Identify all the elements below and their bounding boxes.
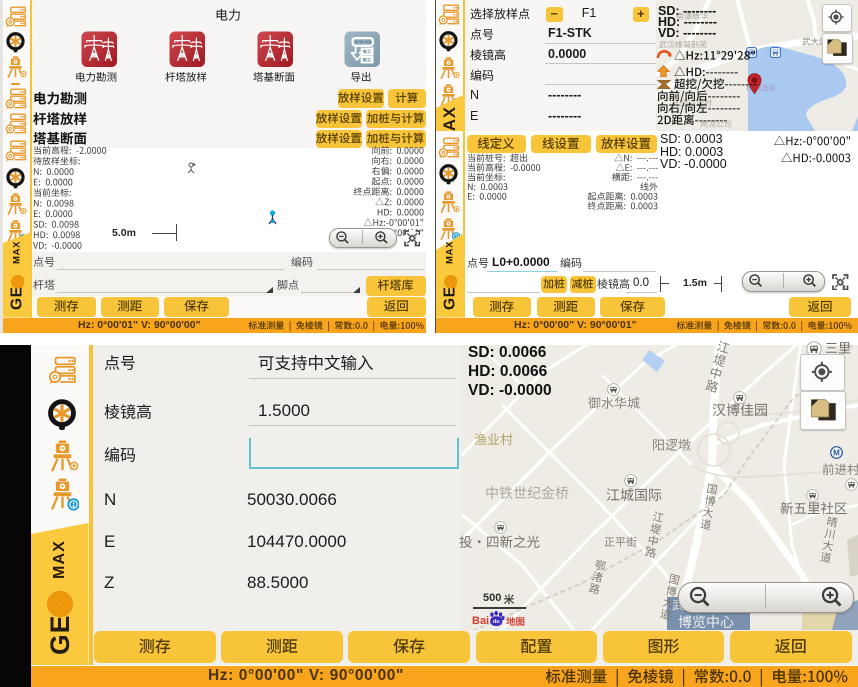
svg-text:M: M [833,448,840,457]
svg-text:du: du [493,619,500,625]
